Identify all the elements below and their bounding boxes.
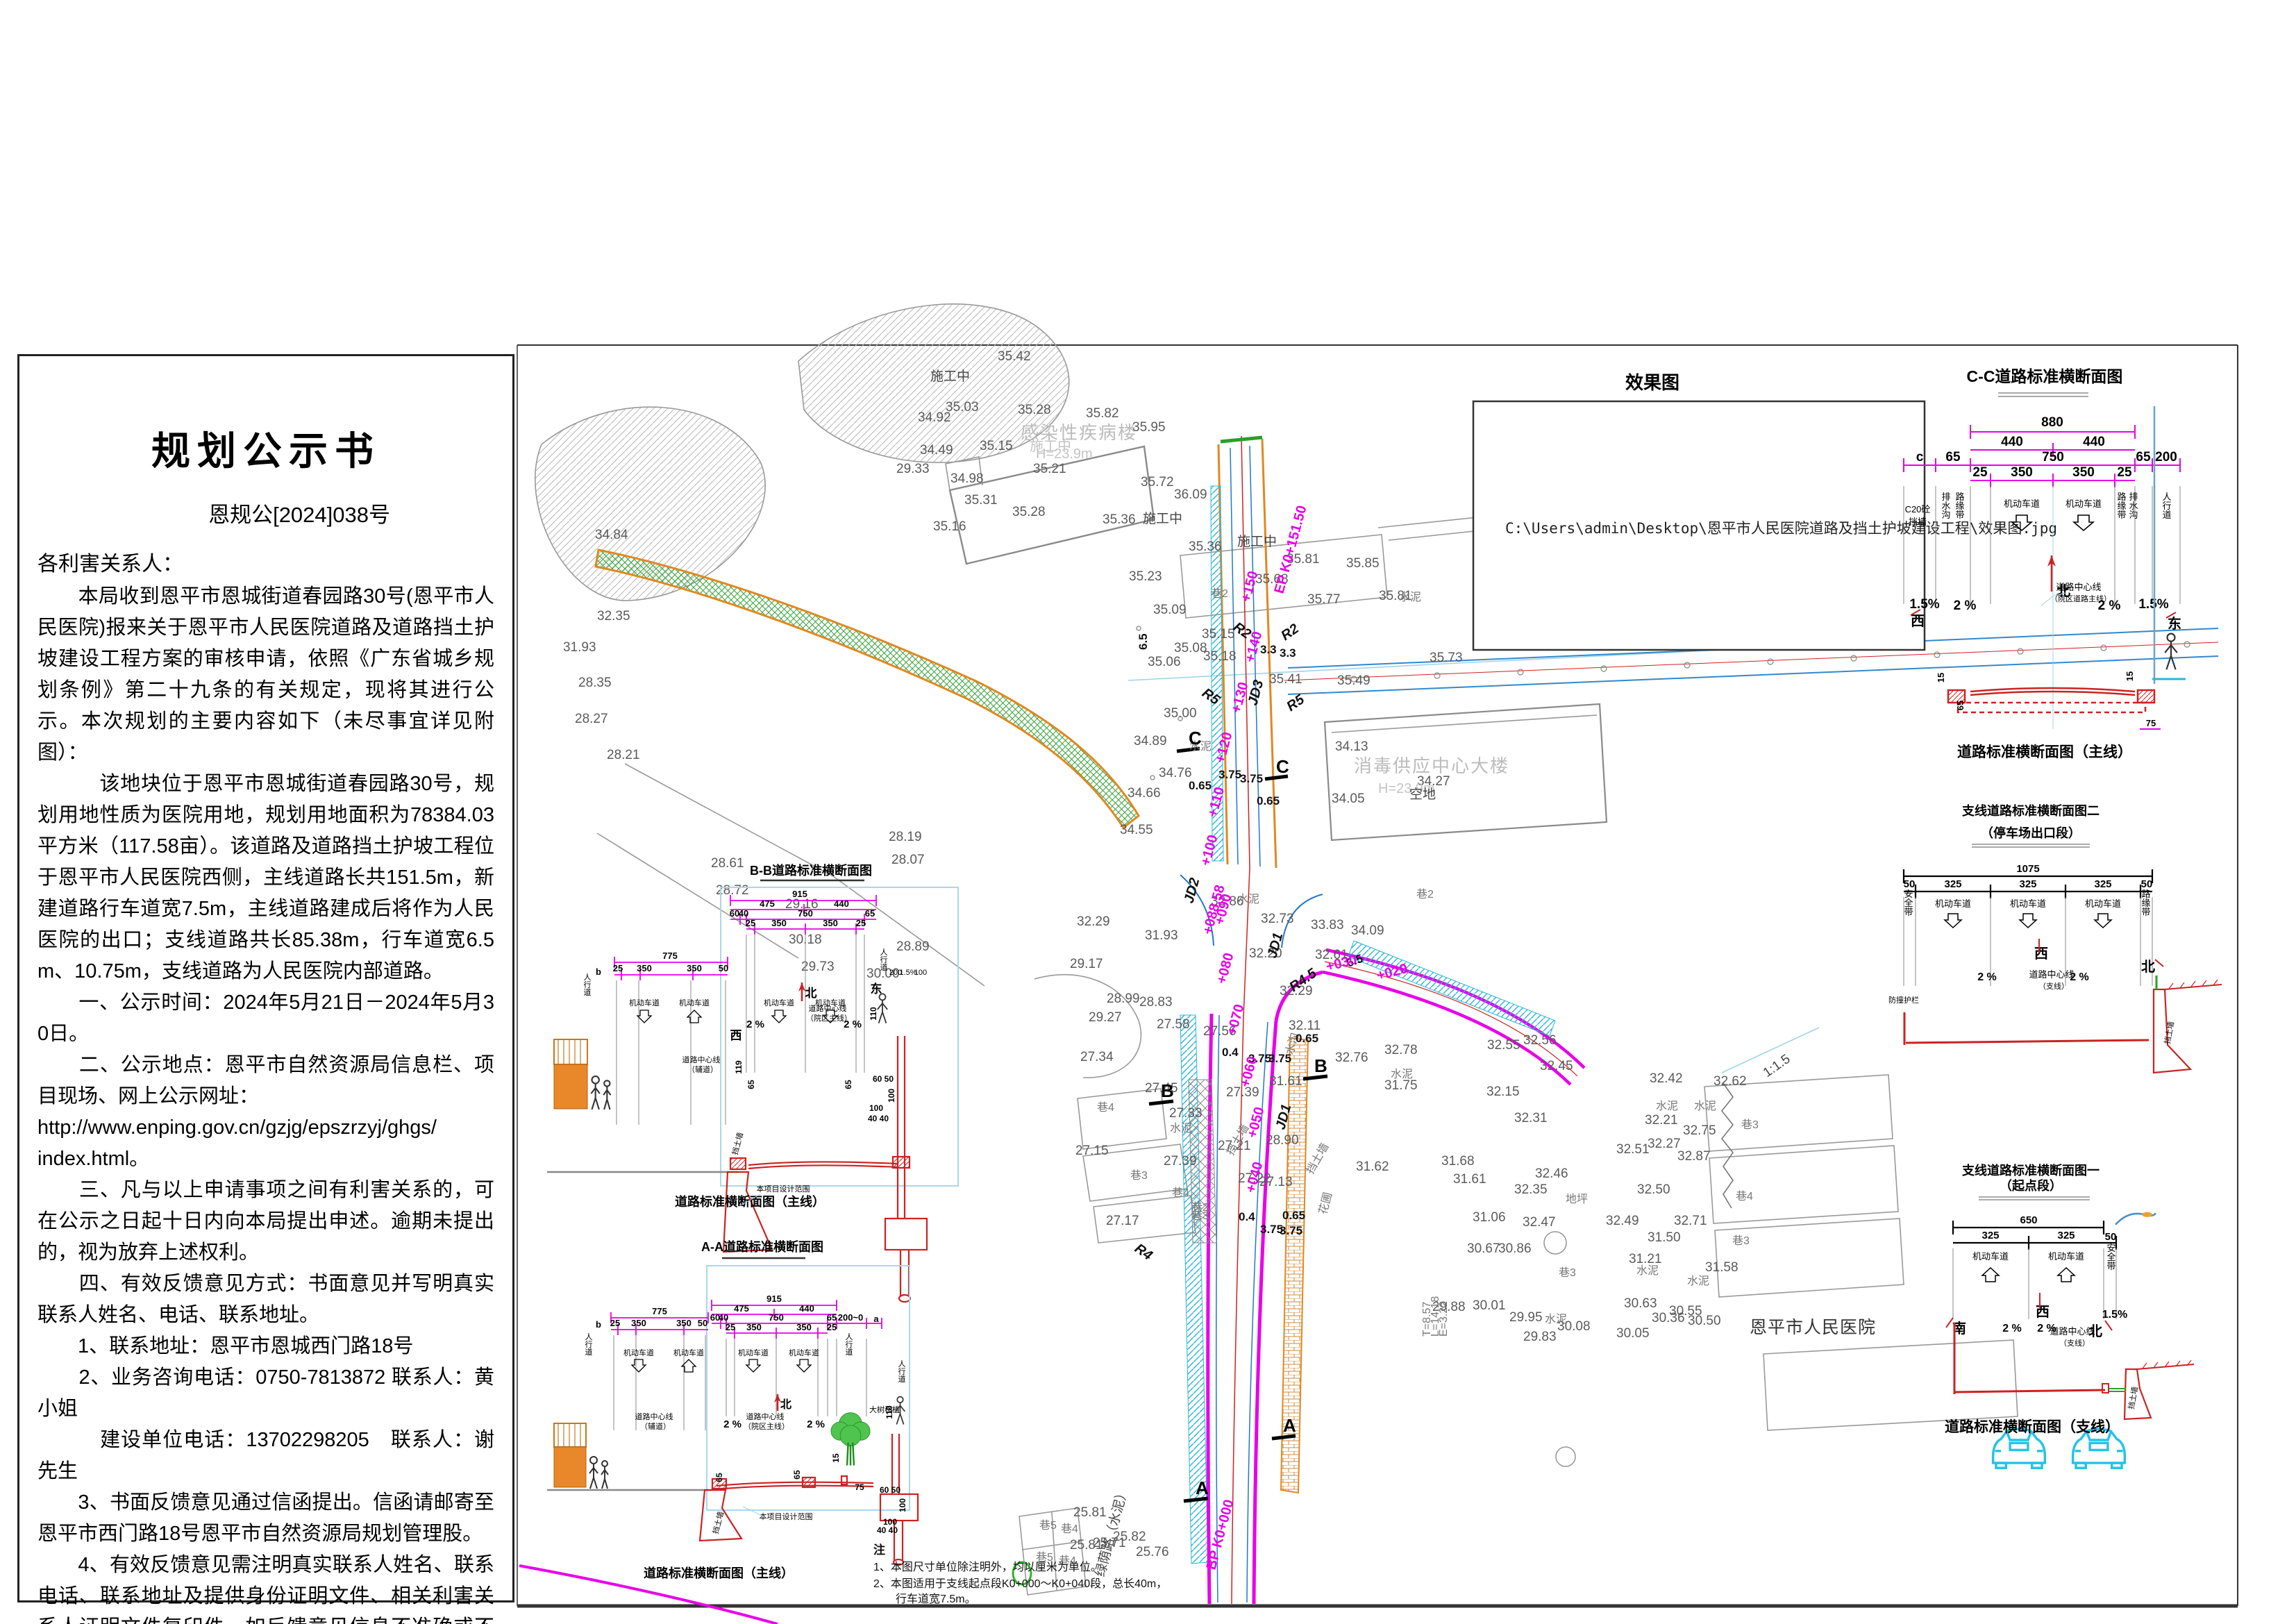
elevation-label: 34.98: [950, 471, 984, 486]
elevation-label: 30.01: [1473, 1298, 1506, 1313]
svg-text:北: 北: [780, 1398, 791, 1411]
section-branch1: 支线道路标准横断面图一 （起点段） 650 325325 50 机动车道 机动车…: [1945, 1163, 2194, 1624]
map-label: B: [1314, 1055, 1327, 1076]
map-label: R5: [1284, 692, 1307, 714]
svg-text:65: 65: [1955, 701, 1966, 710]
svg-text:350: 350: [796, 1322, 812, 1332]
map-label: 水泥: [1687, 1275, 1709, 1287]
elevation-label: 35.31: [964, 493, 998, 508]
svg-text:65: 65: [865, 908, 875, 919]
svg-text:110: 110: [869, 1007, 878, 1021]
svg-text:机动车道: 机动车道: [679, 998, 710, 1007]
svg-text:a: a: [873, 1314, 879, 1324]
elevation-label: 35.15: [980, 439, 1013, 453]
svg-text:道路中心线: 道路中心线: [682, 1055, 721, 1064]
svg-text:65: 65: [746, 1080, 756, 1089]
elevation-label: 29.73: [801, 960, 835, 974]
svg-text:440: 440: [799, 1303, 814, 1314]
map-label: 0.65: [1282, 1209, 1305, 1222]
svg-text:440: 440: [2083, 435, 2105, 449]
svg-text:北: 北: [2141, 959, 2155, 975]
elevation-label: 33.83: [1311, 918, 1344, 932]
map-label: 水泥: [1391, 1068, 1413, 1080]
elevation-label: 35.72: [1141, 475, 1174, 489]
svg-text:C20砼: C20砼: [1905, 504, 1931, 514]
elevation-label: 35.00: [1164, 706, 1197, 721]
elevation-label: 34.13: [1335, 739, 1368, 754]
elevation-label: 30.50: [1688, 1314, 1721, 1328]
svg-text:100: 100: [898, 1498, 907, 1512]
svg-text:100: 100: [869, 1103, 883, 1113]
effect-title: 效果图: [1625, 372, 1679, 393]
elevation-label: 29.17: [1070, 957, 1103, 971]
map-label: 0.65: [1189, 779, 1212, 792]
green-road: [596, 550, 1139, 828]
svg-text:350: 350: [823, 918, 838, 928]
elevation-label: 35.77: [1307, 592, 1341, 607]
elevation-label: 35.28: [1012, 505, 1046, 519]
map-label: 水泥: [1545, 1313, 1567, 1325]
map-label: R4: [1132, 1241, 1155, 1264]
svg-text:机动车道: 机动车道: [2004, 499, 2040, 509]
svg-text:325: 325: [1944, 878, 1961, 890]
elevation-label: 32.56: [1523, 1033, 1557, 1048]
svg-text:25: 25: [1972, 465, 1988, 480]
elevation-label: 29.27: [1089, 1010, 1122, 1025]
svg-text:机动车道: 机动车道: [738, 1348, 769, 1357]
elevation-label: 34.09: [1351, 923, 1384, 938]
elevation-label: 31.06: [1473, 1210, 1506, 1225]
map-label: 3.3: [1280, 646, 1296, 660]
svg-text:路缘带: 路缘带: [2116, 492, 2127, 519]
elevation-label: 32.46: [1535, 1166, 1568, 1181]
svg-text:2 %: 2 %: [844, 1019, 862, 1030]
elevation-label: 32.76: [1335, 1050, 1368, 1065]
svg-text:挡土墙: 挡土墙: [2126, 1386, 2140, 1410]
svg-text:25: 25: [610, 1318, 620, 1328]
svg-text:本项目设计范围: 本项目设计范围: [760, 1512, 813, 1521]
map-label: 水泥: [1399, 591, 1421, 603]
map-label: 巷3: [1130, 1169, 1148, 1182]
svg-text:（支线）: （支线）: [2038, 981, 2069, 991]
elevation-label: 27.33: [1169, 1106, 1203, 1121]
svg-text:东: 东: [871, 982, 882, 996]
svg-text:25: 25: [856, 918, 866, 928]
svg-text:（停车场出口段）: （停车场出口段）: [1981, 826, 2081, 840]
svg-text:支线道路标准横断面图一: 支线道路标准横断面图一: [1961, 1163, 2100, 1178]
svg-text:440: 440: [2001, 435, 2023, 449]
svg-text:119: 119: [734, 1060, 744, 1074]
svg-text:道路中心线: 道路中心线: [2056, 582, 2101, 592]
elevation-label: 28.27: [575, 712, 608, 726]
elevation-label: 31.50: [1648, 1230, 1681, 1245]
svg-text:2 %: 2 %: [1977, 971, 1997, 983]
elevation-label: 32.51: [1616, 1142, 1650, 1157]
elevation-label: 27.17: [1106, 1214, 1139, 1228]
map-label: E=3.22: [1438, 1301, 1450, 1337]
map-label: 巷3: [1732, 1234, 1750, 1247]
svg-text:挡土墙: 挡土墙: [710, 1510, 726, 1534]
station-label: +050: [1245, 1105, 1268, 1139]
elevation-label: 31.68: [1441, 1154, 1475, 1169]
svg-text:40 40: 40 40: [868, 1114, 889, 1123]
svg-text:915: 915: [792, 889, 807, 899]
svg-text:机动车道: 机动车道: [629, 998, 660, 1007]
elevation-label: 31.93: [563, 640, 596, 655]
svg-text:（辅道）: （辅道）: [687, 1064, 718, 1074]
svg-text:东: 东: [2168, 615, 2181, 632]
map-label: JD2: [1182, 876, 1203, 905]
svg-text:325: 325: [2057, 1230, 2075, 1241]
svg-text:65: 65: [2136, 450, 2151, 464]
elevation-label: 32.78: [1384, 1043, 1418, 1057]
station-label: EP K0+151.50: [1272, 504, 1310, 596]
svg-text:机动车道: 机动车道: [2065, 499, 2102, 509]
svg-text:75: 75: [855, 1482, 864, 1492]
elevation-label: 32.35: [1514, 1182, 1548, 1197]
elevation-label: 30.05: [1616, 1326, 1650, 1341]
svg-text:50: 50: [2105, 1231, 2117, 1243]
elevation-label: 25.81: [1073, 1505, 1107, 1520]
station-label: +060: [1238, 1055, 1261, 1089]
svg-text:2、本图适用于支线起点段K0+000～K0+040段，总长4: 2、本图适用于支线起点段K0+000～K0+040段，总长40m，: [873, 1577, 1167, 1590]
elevation-label: 28.99: [1107, 991, 1140, 1006]
svg-text:50: 50: [1904, 878, 1916, 890]
section-branch2: 支线道路标准横断面图二 （停车场出口段） 1075 50325 325325 5…: [1883, 803, 2222, 1624]
elevation-label: 32.42: [1650, 1071, 1683, 1086]
elevation-label: 34.55: [1120, 823, 1153, 837]
svg-text:排水沟: 排水沟: [1941, 492, 1951, 519]
elevation-label: 35.28: [1018, 403, 1051, 417]
elevation-label: 28.07: [891, 853, 925, 867]
elevation-label: 31.93: [1145, 928, 1178, 943]
elevation-label: 27.15: [1075, 1144, 1109, 1158]
elevation-label: 30.63: [1624, 1296, 1657, 1311]
svg-text:750: 750: [2042, 450, 2064, 464]
map-label: 1:1.5: [1761, 1052, 1793, 1080]
svg-text:安全带: 安全带: [1903, 889, 1913, 916]
svg-text:机动车道: 机动车道: [2010, 898, 2046, 909]
svg-text:安全带: 安全带: [2106, 1244, 2116, 1271]
svg-text:50: 50: [2141, 878, 2153, 890]
svg-text:350: 350: [687, 963, 702, 973]
map-label: 恩平市人民医院: [1750, 1318, 1876, 1337]
elevation-label: 34.76: [1159, 766, 1192, 780]
svg-text:道路中心线: 道路中心线: [809, 1003, 847, 1013]
elevation-label: 32.29: [1077, 914, 1110, 929]
elevation-label: 35.49: [1337, 673, 1371, 688]
map-label: C: [1276, 756, 1289, 777]
building-elevation: [554, 1039, 587, 1109]
map-label: 0.65: [1296, 1032, 1318, 1045]
svg-text:b: b: [596, 966, 601, 977]
svg-text:支线道路标准横断面图二: 支线道路标准横断面图二: [1961, 803, 2100, 818]
svg-text:65: 65: [714, 1473, 724, 1482]
svg-text:（起点段）: （起点段）: [2000, 1178, 2062, 1193]
svg-text:B-B道路标准横断面图: B-B道路标准横断面图: [750, 863, 872, 878]
svg-text:915: 915: [766, 1294, 782, 1304]
svg-text:2 %: 2 %: [807, 1418, 825, 1430]
elevation-label: 32.15: [1486, 1085, 1520, 1099]
elevation-label: 34.49: [920, 443, 953, 458]
svg-text:挡土墙: 挡土墙: [2162, 1021, 2176, 1045]
elevation-label: 35.08: [1174, 641, 1207, 655]
elevation-label: 32.49: [1606, 1214, 1639, 1228]
svg-text:750: 750: [769, 1312, 784, 1323]
svg-text:（辅道）: （辅道）: [640, 1421, 671, 1431]
map-label: 巷3: [1191, 1209, 1209, 1222]
svg-text:机动车道: 机动车道: [789, 1348, 819, 1357]
svg-text:350: 350: [637, 963, 652, 973]
elevation-label: 35.85: [1346, 556, 1380, 571]
map-label: 水泥: [1656, 1100, 1678, 1112]
svg-text:2 %: 2 %: [1954, 598, 1977, 613]
svg-text:人行道: 人行道: [584, 1332, 593, 1355]
section-bb-caption: 道路标准横断面图（主线）: [675, 1194, 825, 1209]
map-label: R2: [1278, 621, 1302, 644]
elevation-label: 34.66: [1128, 786, 1161, 801]
svg-text:挡土墙: 挡土墙: [730, 1131, 745, 1155]
map-label: 水泥: [1636, 1264, 1659, 1277]
svg-text:1、本图尺寸单位除注明外，均以厘米为单位。: 1、本图尺寸单位除注明外，均以厘米为单位。: [873, 1561, 1102, 1573]
north-arrow-cc: 北: [2047, 555, 2070, 599]
svg-text:15: 15: [831, 1453, 841, 1463]
elevation-label: 28.35: [578, 676, 612, 690]
svg-text:65: 65: [844, 1080, 853, 1089]
elevation-label: 31.61: [1269, 1074, 1302, 1089]
elevation-label: 32.31: [1514, 1111, 1548, 1125]
elevation-label: 29.33: [896, 462, 930, 476]
elevation-label: 28.61: [711, 856, 744, 871]
elevation-label: 31.75: [1384, 1078, 1418, 1093]
map-label: 空地: [1409, 787, 1436, 802]
svg-text:机动车道: 机动车道: [1972, 1251, 2009, 1262]
elevation-label: 31.58: [1705, 1260, 1738, 1275]
svg-text:本项目设计范围: 本项目设计范围: [757, 1184, 810, 1194]
map-label: 巷3: [1559, 1266, 1576, 1279]
map-label: 巷5: [1039, 1519, 1057, 1532]
elevation-label: 35.73: [1430, 651, 1463, 665]
svg-text:100: 100: [887, 1089, 896, 1103]
svg-text:人行道: 人行道: [583, 973, 592, 996]
elevation-label: 27.39: [1164, 1154, 1197, 1169]
svg-text:1.5%: 1.5%: [2102, 1309, 2127, 1321]
elevation-label: 31.61: [1453, 1172, 1486, 1187]
elevation-label: 27.13: [1259, 1175, 1293, 1189]
svg-text:人行道: 人行道: [897, 1359, 906, 1382]
svg-text:40: 40: [719, 1312, 728, 1323]
elevation-label: 35.95: [1132, 420, 1166, 435]
section-aa-caption: 道路标准横断面图（主线）: [644, 1566, 794, 1580]
map-label: 0.4: [1222, 1046, 1239, 1059]
svg-text:50: 50: [719, 963, 728, 973]
svg-text:350: 350: [2011, 465, 2033, 480]
map-label: 挡土墙: [1304, 1141, 1332, 1176]
elevation-label: 32.45: [1540, 1059, 1573, 1073]
elevation-label: 35.16: [933, 519, 966, 534]
section-cc-title: C-C道路标准横断面图: [1967, 367, 2123, 385]
map-label: 地坪: [1566, 1193, 1588, 1205]
svg-text:65: 65: [827, 1312, 837, 1323]
elevation-label: 32.87: [1677, 1149, 1711, 1164]
svg-text:路缘带: 路缘带: [1954, 492, 1965, 519]
map-label: 3.75: [1240, 772, 1263, 785]
svg-text:50: 50: [698, 1318, 707, 1328]
map-label: 施工中: [930, 369, 970, 384]
map-label: 花圃: [1316, 1191, 1334, 1216]
elevation-label: 35.06: [1148, 655, 1181, 669]
elevation-label: 34.89: [1134, 734, 1167, 748]
elevation-label: 36.09: [1174, 487, 1207, 502]
elevation-label: 28.83: [1139, 995, 1173, 1010]
svg-text:40 40: 40 40: [877, 1525, 898, 1535]
map-label: 3.75: [1218, 768, 1241, 781]
map-label: 巷4: [1097, 1101, 1114, 1114]
svg-text:A-A道路标准横断面图: A-A道路标准横断面图: [701, 1239, 823, 1254]
svg-text:350: 350: [2072, 465, 2095, 480]
map-label: 巷4: [1736, 1190, 1753, 1203]
roads: [519, 436, 2218, 1624]
svg-text:（院区主线）: （院区主线）: [744, 1421, 789, 1431]
effect-broken-image-path: C:\Users\admin\Desktop\恩平市人民医院道路及挡土护坡建设工…: [1505, 520, 2057, 537]
elevation-label: 27.58: [1157, 1017, 1190, 1032]
elevation-label: 32.35: [597, 609, 630, 623]
map-label: 感染性疾病楼: [1021, 422, 1137, 443]
elevation-label: 32.71: [1674, 1214, 1707, 1228]
svg-text:排水沟: 排水沟: [2128, 492, 2138, 519]
elevation-label: 30.67: [1467, 1241, 1500, 1256]
svg-text:40: 40: [739, 908, 748, 919]
svg-text:人行道: 人行道: [2161, 492, 2172, 519]
map-label: A: [1283, 1415, 1296, 1436]
elevation-label: 34.05: [1332, 792, 1365, 806]
map-label: JD1: [1265, 931, 1287, 960]
svg-text:西: 西: [2034, 946, 2048, 962]
svg-text:西: 西: [730, 1029, 742, 1042]
map-label: 消毒供应中心大楼: [1354, 755, 1509, 776]
svg-text:475: 475: [734, 1303, 749, 1314]
svg-text:880: 880: [2041, 415, 2063, 430]
elevation-label: 32.11: [1289, 1019, 1321, 1033]
svg-text:1.5%: 1.5%: [1909, 597, 1939, 612]
svg-text:2 %: 2 %: [2098, 598, 2121, 613]
elevation-label: 34.92: [918, 410, 951, 425]
elevation-label: 30.86: [1498, 1241, 1532, 1256]
map-label: 6.5: [1137, 633, 1150, 650]
elevation-label: 25.76: [1136, 1545, 1169, 1559]
svg-text:775: 775: [652, 1306, 667, 1316]
svg-text:110: 110: [885, 1405, 894, 1419]
svg-text:道路中心线: 道路中心线: [635, 1412, 673, 1421]
map-label: 0.65: [1257, 794, 1280, 807]
elevation-label: 35.36: [1189, 539, 1222, 554]
elevation-label: 34.84: [595, 528, 628, 542]
svg-text:注: 注: [873, 1543, 885, 1557]
svg-text:65: 65: [792, 1470, 802, 1480]
elevation-label: 35.36: [1103, 512, 1136, 527]
svg-text:325: 325: [2019, 878, 2036, 890]
map-label: 巷2: [1211, 587, 1228, 600]
svg-text:人行道: 人行道: [879, 948, 888, 971]
svg-text:2 %: 2 %: [2002, 1323, 2022, 1334]
svg-text:防撞护栏: 防撞护栏: [1888, 995, 1919, 1005]
map-label: H=23.9m: [1036, 446, 1093, 462]
svg-text:475: 475: [760, 898, 775, 909]
section-cc-caption: 道路标准横断面图（主线）: [1957, 744, 2132, 760]
map-label: 巷3: [1741, 1119, 1759, 1131]
svg-text:350: 350: [676, 1318, 692, 1328]
svg-text:75: 75: [2146, 718, 2156, 728]
elevation-label: 32.27: [1648, 1137, 1681, 1151]
map-label: B: [1161, 1080, 1174, 1101]
map-label: 施工中: [1143, 511, 1182, 526]
elevation-label: 27.39: [1226, 1085, 1259, 1100]
map-label: 3.3: [1260, 643, 1277, 656]
map-label: 3.75: [1268, 1052, 1291, 1065]
svg-text:北: 北: [805, 987, 817, 1000]
svg-text:325: 325: [1981, 1230, 1999, 1241]
elevation-label: 29.83: [1523, 1330, 1557, 1344]
svg-text:100: 100: [914, 969, 927, 977]
map-label: 水泥: [1170, 1122, 1192, 1135]
map-label: 水泥: [1237, 893, 1259, 905]
map-label: 巷4: [1061, 1523, 1078, 1535]
elevation-label: 35.15: [1202, 627, 1235, 642]
svg-text:65: 65: [1945, 450, 1961, 464]
section-aa: 本项目设计范围 A-A道路标准横断面图 915 475440 6040 7506…: [547, 1184, 918, 1624]
svg-text:挡墙: 挡墙: [1909, 517, 1927, 527]
svg-text:（支线）: （支线）: [2059, 1338, 2090, 1348]
svg-text:2 %: 2 %: [746, 1019, 764, 1030]
svg-text:人行道: 人行道: [844, 1332, 853, 1355]
drawing-notes: 注 1、本图尺寸单位除注明外，均以厘米为单位。 2、本图适用于支线起点段K0+0…: [873, 1543, 1167, 1605]
elevation-label: 32.55: [1487, 1038, 1520, 1053]
map-label: 水泥: [1694, 1100, 1716, 1112]
svg-text:道路中心线: 道路中心线: [2029, 969, 2074, 980]
svg-text:775: 775: [662, 951, 678, 961]
map-label: A: [1196, 1477, 1209, 1498]
svg-text:325: 325: [2094, 878, 2111, 890]
elevation-label: 31.21: [1629, 1252, 1662, 1266]
map-label: 施工中: [1237, 534, 1277, 549]
elevation-label: 32.47: [1523, 1215, 1556, 1230]
elevation-label: 27.34: [1080, 1050, 1114, 1064]
map-label: 巷2: [1416, 888, 1434, 901]
svg-text:1075: 1075: [2016, 863, 2039, 875]
svg-text:25: 25: [746, 918, 755, 928]
svg-text:350: 350: [746, 1322, 762, 1332]
svg-text:200~0: 200~0: [838, 1312, 864, 1323]
elevation-label: 28.21: [607, 748, 640, 762]
svg-text:15: 15: [2125, 671, 2135, 681]
svg-text:c: c: [1916, 450, 1924, 464]
elevation-label: 35.82: [1086, 406, 1119, 421]
building-elevation-aa: [554, 1423, 586, 1487]
svg-text:西: 西: [1911, 614, 1925, 629]
elevation-label: 32.21: [1645, 1113, 1678, 1128]
elevation-label: 32.75: [1683, 1123, 1716, 1138]
section-branch1-caption: 道路标准横断面图（支线）: [1945, 1418, 2120, 1435]
svg-text:2 %: 2 %: [723, 1418, 741, 1430]
svg-text:机动车道: 机动车道: [673, 1348, 704, 1357]
map-label: 0.4: [1239, 1210, 1255, 1223]
svg-text:60 50: 60 50: [873, 1074, 894, 1084]
svg-text:行车道宽7.5m。: 行车道宽7.5m。: [873, 1593, 976, 1605]
svg-text:25: 25: [827, 1322, 837, 1332]
svg-text:机动车道: 机动车道: [623, 1348, 654, 1357]
svg-text:b: b: [596, 1319, 601, 1330]
elevation-label: 28.89: [896, 939, 930, 954]
